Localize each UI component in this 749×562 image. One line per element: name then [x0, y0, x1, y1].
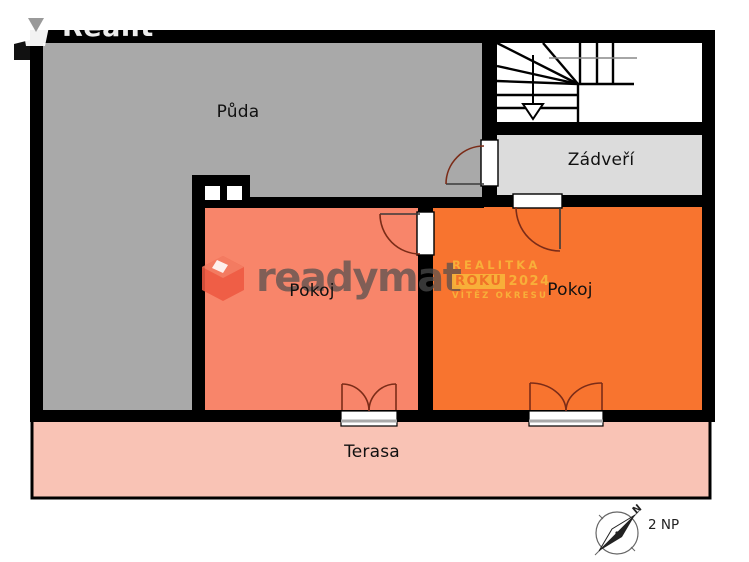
realit-logo-icon	[12, 8, 54, 60]
room-pokoj-right	[425, 202, 709, 416]
watermark-logo-text: readymat	[256, 255, 460, 301]
room-label-zadveri: Zádveří	[568, 150, 635, 170]
award-line2: ROKU 2024	[452, 274, 562, 289]
award-badge: REALITKA ROKU 2024 VÍTĚZ OKRESU	[452, 258, 562, 301]
compass-north-label: N	[631, 503, 644, 517]
award-line1: REALITKA	[452, 258, 562, 272]
compass-icon: N	[595, 503, 644, 555]
wall	[30, 30, 43, 422]
room-label-puda: Půda	[217, 102, 260, 122]
realit-logo: Realit	[12, 8, 154, 60]
room-label-terasa: Terasa	[344, 442, 400, 462]
award-line3: VÍTĚZ OKRESU	[452, 291, 562, 301]
award-year: 2024	[508, 274, 550, 289]
room-label-pokoj-right: Pokoj	[547, 280, 592, 300]
chimney-icon	[192, 175, 250, 208]
wall	[702, 30, 715, 422]
wall	[495, 122, 705, 135]
readymat-cube-icon	[198, 253, 248, 303]
floor-label: 2 NP	[648, 517, 679, 533]
stairs-icon	[497, 43, 637, 122]
floor-plan-page: N readymat REALITKA ROKU 2024 VÍTĚZ OKRE…	[0, 0, 749, 562]
award-roku-box: ROKU	[452, 274, 505, 289]
wall	[192, 197, 205, 412]
room-label-pokoj-left: Pokoj	[289, 281, 334, 301]
realit-logo-text: Realit	[62, 12, 154, 43]
